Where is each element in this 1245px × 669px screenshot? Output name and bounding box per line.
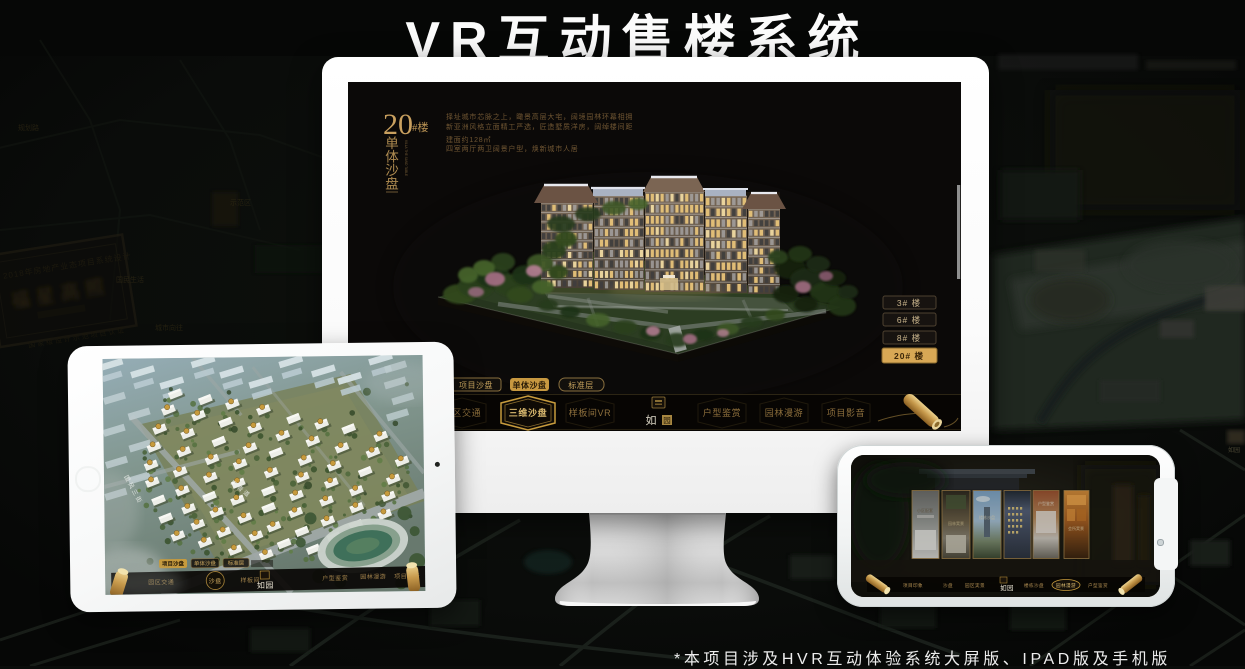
svg-text:园林漫游: 园林漫游 — [765, 407, 803, 418]
svg-text:沙盘: 沙盘 — [209, 577, 222, 585]
svg-text:园区実景: 园区実景 — [965, 582, 985, 589]
svg-text:如: 如 — [646, 413, 657, 427]
svg-text:#楼: #楼 — [412, 120, 429, 134]
svg-text:项目印象: 项目印象 — [903, 582, 923, 589]
svg-text:园: 园 — [663, 416, 671, 425]
svg-text:样板间VR: 样板间VR — [569, 407, 612, 418]
svg-text:沙盘: 沙盘 — [943, 582, 953, 588]
svg-text:楼栋沙盘: 楼栋沙盘 — [1024, 582, 1044, 589]
svg-text:园林漫游: 园林漫游 — [1056, 582, 1076, 589]
svg-text:城市向往: 城市向往 — [155, 323, 183, 332]
svg-text:8# 楼: 8# 楼 — [897, 333, 921, 343]
svg-text:项目沙盘: 项目沙盘 — [459, 380, 493, 390]
svg-text:示范区: 示范区 — [230, 198, 251, 207]
svg-text:标准层: 标准层 — [568, 380, 594, 390]
svg-text:新亚洲风格立面精工严选，匠造墅质洋房，阔绰楼间距: 新亚洲风格立面精工严选，匠造墅质洋房，阔绰楼间距 — [446, 122, 633, 131]
svg-text:项目沙盘: 项目沙盘 — [162, 559, 185, 567]
svg-text:户型鉴赏: 户型鉴赏 — [1088, 582, 1108, 589]
svg-text:20# 楼: 20# 楼 — [894, 351, 924, 361]
svg-text:如园: 如园 — [1000, 583, 1014, 592]
svg-text:户型鉴赏: 户型鉴赏 — [703, 407, 741, 418]
svg-text:6# 楼: 6# 楼 — [897, 315, 921, 325]
svg-text:四室两厅两卫阔景户型，焕新城市人居: 四室两厅两卫阔景户型，焕新城市人居 — [446, 144, 579, 153]
svg-text:如园: 如园 — [1228, 446, 1240, 454]
svg-text:标准层: 标准层 — [228, 559, 245, 567]
svg-text:建面约128㎡: 建面约128㎡ — [446, 135, 491, 144]
svg-text:三维沙盘: 三维沙盘 — [509, 407, 547, 418]
svg-text:项目影音: 项目影音 — [827, 407, 865, 418]
svg-text:规划路: 规划路 — [18, 123, 39, 132]
svg-text:单体沙盘: 单体沙盘 — [194, 559, 217, 567]
svg-text:VILLA THE SAND TABLE: VILLA THE SAND TABLE — [404, 140, 408, 176]
svg-text:单体沙盘: 单体沙盘 — [513, 380, 547, 390]
svg-text:择址城市芯脉之上，瞰景高层大宅，阔境园林环幕相拥: 择址城市芯脉之上，瞰景高层大宅，阔境园林环幕相拥 — [446, 112, 633, 121]
svg-text:国民生活: 国民生活 — [116, 275, 144, 284]
svg-text:单体沙盘: 单体沙盘 — [385, 136, 399, 192]
svg-text:3# 楼: 3# 楼 — [897, 298, 921, 308]
svg-text:如园: 如园 — [257, 580, 274, 590]
